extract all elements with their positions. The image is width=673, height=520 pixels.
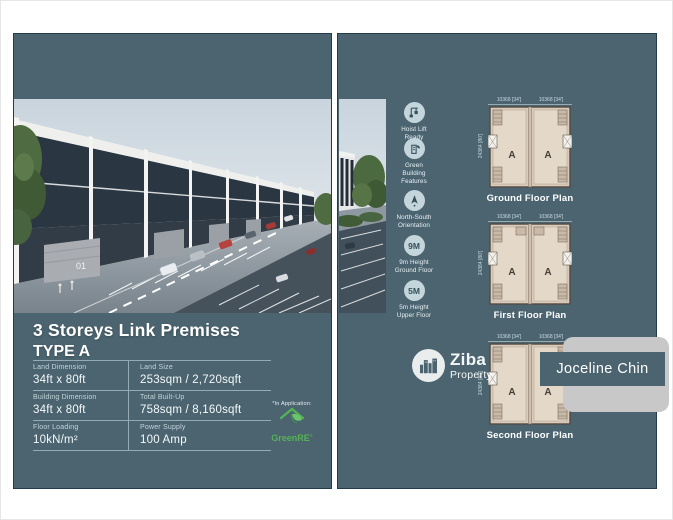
city-skyline-glyph xyxy=(419,357,438,374)
building-render-image: 01 xyxy=(14,99,331,313)
dim-label: 24384 [80'] xyxy=(478,226,484,300)
plan-caption: Second Floor Plan xyxy=(486,430,574,441)
dim-label: 10368 [34'] xyxy=(488,214,530,222)
unit-label: A xyxy=(508,150,515,161)
unit-label: A xyxy=(544,267,551,278)
spec-label: Floor Loading xyxy=(33,424,128,431)
spec-value: 100 Amp xyxy=(140,434,271,446)
feature-label: 5m Height Upper Floor xyxy=(385,304,443,320)
spec-row: Floor Loading 10kN/m² Power Supply 100 A… xyxy=(33,420,271,451)
plan-depth-dimension: 24384 [80'] xyxy=(476,222,488,306)
unit-label: A xyxy=(544,150,551,161)
height-9m-icon: 9M xyxy=(404,235,425,256)
spec-cell-land-size: Land Size 253sqm / 2,720sqft xyxy=(128,361,271,390)
agent-name: Joceline Chin xyxy=(556,361,648,377)
cert-name: GreenRE® xyxy=(260,433,324,443)
spec-row: Land Dimension 34ft x 80ft Land Size 253… xyxy=(33,360,271,390)
greenre-logo-icon xyxy=(277,407,307,429)
plan-width-dimensions: 10368 [34'] 10368 [34'] xyxy=(488,97,572,105)
feature-label: Green Building Features xyxy=(385,162,443,187)
agent-name-band: Joceline Chin xyxy=(540,352,665,386)
feature-orientation: North-South Orientation xyxy=(385,190,443,230)
plan-width-dimensions: 10368 [34'] 10368 [34'] xyxy=(488,214,572,222)
height-5m-badge: 5M xyxy=(408,286,420,296)
spec-label: Total Built-Up xyxy=(140,394,271,401)
left-flyer-panel: 01 xyxy=(13,33,332,489)
cert-name-text: GreenRE xyxy=(271,433,310,443)
plan-depth-dimension: 24384 [80'] xyxy=(476,105,488,189)
plan-caption: Ground Floor Plan xyxy=(486,193,574,204)
floor-plan-drawing: A A xyxy=(488,105,572,189)
flyer-page: 01 xyxy=(0,0,673,520)
spec-row: Building Dimension 34ft x 80ft Total Bui… xyxy=(33,390,271,420)
dim-label: 24384 [80'] xyxy=(478,346,484,420)
hoist-lift-glyph xyxy=(408,106,421,119)
feature-5m-height: 5M 5m Height Upper Floor xyxy=(385,280,443,320)
building-render-continued xyxy=(339,99,386,313)
ziba-logo-icon xyxy=(412,349,445,382)
compass-icon xyxy=(404,190,425,211)
spec-label: Power Supply xyxy=(140,424,271,431)
unit-label: A xyxy=(508,387,515,398)
north-arrow-glyph xyxy=(408,194,421,207)
spec-value: 758sqm / 8,160sqft xyxy=(140,404,271,416)
height-9m-badge: 9M xyxy=(408,241,420,251)
feature-9m-height: 9M 9m Height Ground Floor xyxy=(385,235,443,275)
premises-type: TYPE A xyxy=(33,343,240,361)
feature-label: North-South Orientation xyxy=(385,214,443,230)
plan-depth-dimension: 24384 [80'] xyxy=(476,342,488,426)
door-number: 01 xyxy=(76,261,86,271)
green-building-glyph xyxy=(408,142,421,155)
dim-label: 24384 [80'] xyxy=(478,109,484,183)
spec-table: Land Dimension 34ft x 80ft Land Size 253… xyxy=(33,360,271,451)
plan-caption: First Floor Plan xyxy=(486,310,574,321)
first-floor-plan: 10368 [34'] 10368 [34'] 24384 [80'] xyxy=(476,214,586,321)
spec-label: Building Dimension xyxy=(33,394,128,401)
title-block: 3 Storeys Link Premises TYPE A xyxy=(33,320,240,361)
spec-value: 10kN/m² xyxy=(33,434,128,446)
spec-cell-total-built-up: Total Built-Up 758sqm / 8,160sqft xyxy=(128,391,271,420)
hoist-lift-icon xyxy=(404,102,425,123)
greenre-cert: *In Application: GreenRE® xyxy=(260,401,324,443)
registered-mark: ® xyxy=(310,433,313,438)
premises-title: 3 Storeys Link Premises xyxy=(33,320,240,341)
spec-label: Land Size xyxy=(140,364,271,371)
green-building-icon xyxy=(404,138,425,159)
render-scene-sliver xyxy=(339,99,386,313)
ground-floor-plan: 10368 [34'] 10368 [34'] 24384 [80'] xyxy=(476,97,586,204)
render-scene: 01 xyxy=(14,99,331,313)
unit-label: A xyxy=(544,387,551,398)
dim-label: 10368 [34'] xyxy=(488,97,530,105)
unit-label: A xyxy=(508,267,515,278)
spec-cell-land-dimension: Land Dimension 34ft x 80ft xyxy=(33,361,128,390)
floor-plan-drawing: A A xyxy=(488,222,572,306)
feature-hoist-lift: Hoist Lift Ready xyxy=(385,102,443,142)
dim-label: 10368 [34'] xyxy=(488,334,530,342)
feature-label: 9m Height Ground Floor xyxy=(385,259,443,275)
spec-cell-floor-loading: Floor Loading 10kN/m² xyxy=(33,421,128,450)
spec-label: Land Dimension xyxy=(33,364,128,371)
spec-cell-power-supply: Power Supply 100 Amp xyxy=(128,421,271,450)
dim-label: 10368 [34'] xyxy=(530,214,572,222)
right-flyer-panel: Hoist Lift Ready Green Building Features… xyxy=(337,33,657,489)
dim-label: 10368 [34'] xyxy=(530,97,572,105)
spec-value: 34ft x 80ft xyxy=(33,374,128,386)
spec-cell-building-dimension: Building Dimension 34ft x 80ft xyxy=(33,391,128,420)
spec-value: 253sqm / 2,720sqft xyxy=(140,374,271,386)
plan-width-dimensions: 10368 [34'] 10368 [34'] xyxy=(488,334,572,342)
spec-value: 34ft x 80ft xyxy=(33,404,128,416)
feature-green-building: Green Building Features xyxy=(385,138,443,187)
height-5m-icon: 5M xyxy=(404,280,425,301)
